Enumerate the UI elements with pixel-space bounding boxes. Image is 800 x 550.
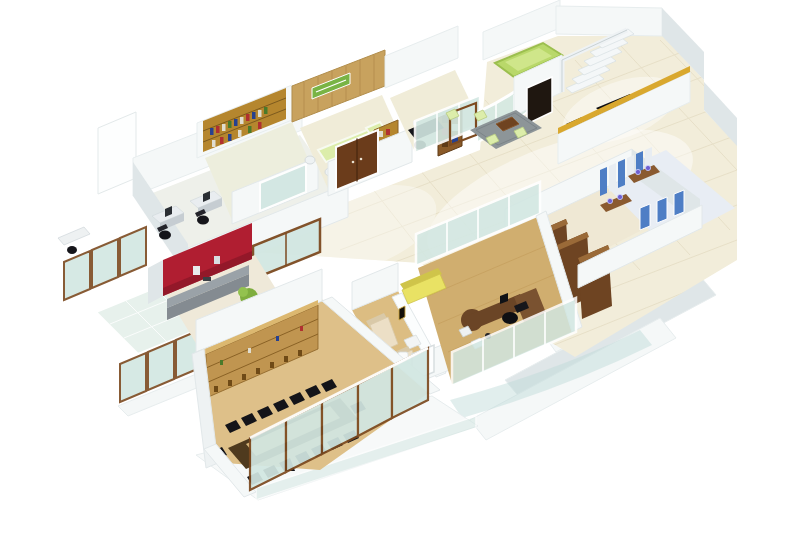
floor-plan-render xyxy=(0,0,800,550)
picture-frame xyxy=(399,306,405,320)
edge-desk xyxy=(58,227,90,245)
sink-basin xyxy=(607,198,612,203)
appliance xyxy=(214,256,220,264)
reception-chair xyxy=(305,156,315,164)
edge-chair xyxy=(67,246,77,254)
sink-basin xyxy=(617,194,622,199)
sink-basin xyxy=(635,169,640,174)
floor-plan-canvas xyxy=(0,0,800,550)
pantry-sink xyxy=(203,277,211,281)
outer-corner-wall xyxy=(98,112,136,194)
exec-chair xyxy=(502,312,518,324)
appliance xyxy=(193,266,200,275)
sink-basin xyxy=(645,165,650,170)
stair-block-top-wall xyxy=(556,6,662,36)
door-knob xyxy=(352,161,355,164)
door-knob xyxy=(360,158,363,161)
